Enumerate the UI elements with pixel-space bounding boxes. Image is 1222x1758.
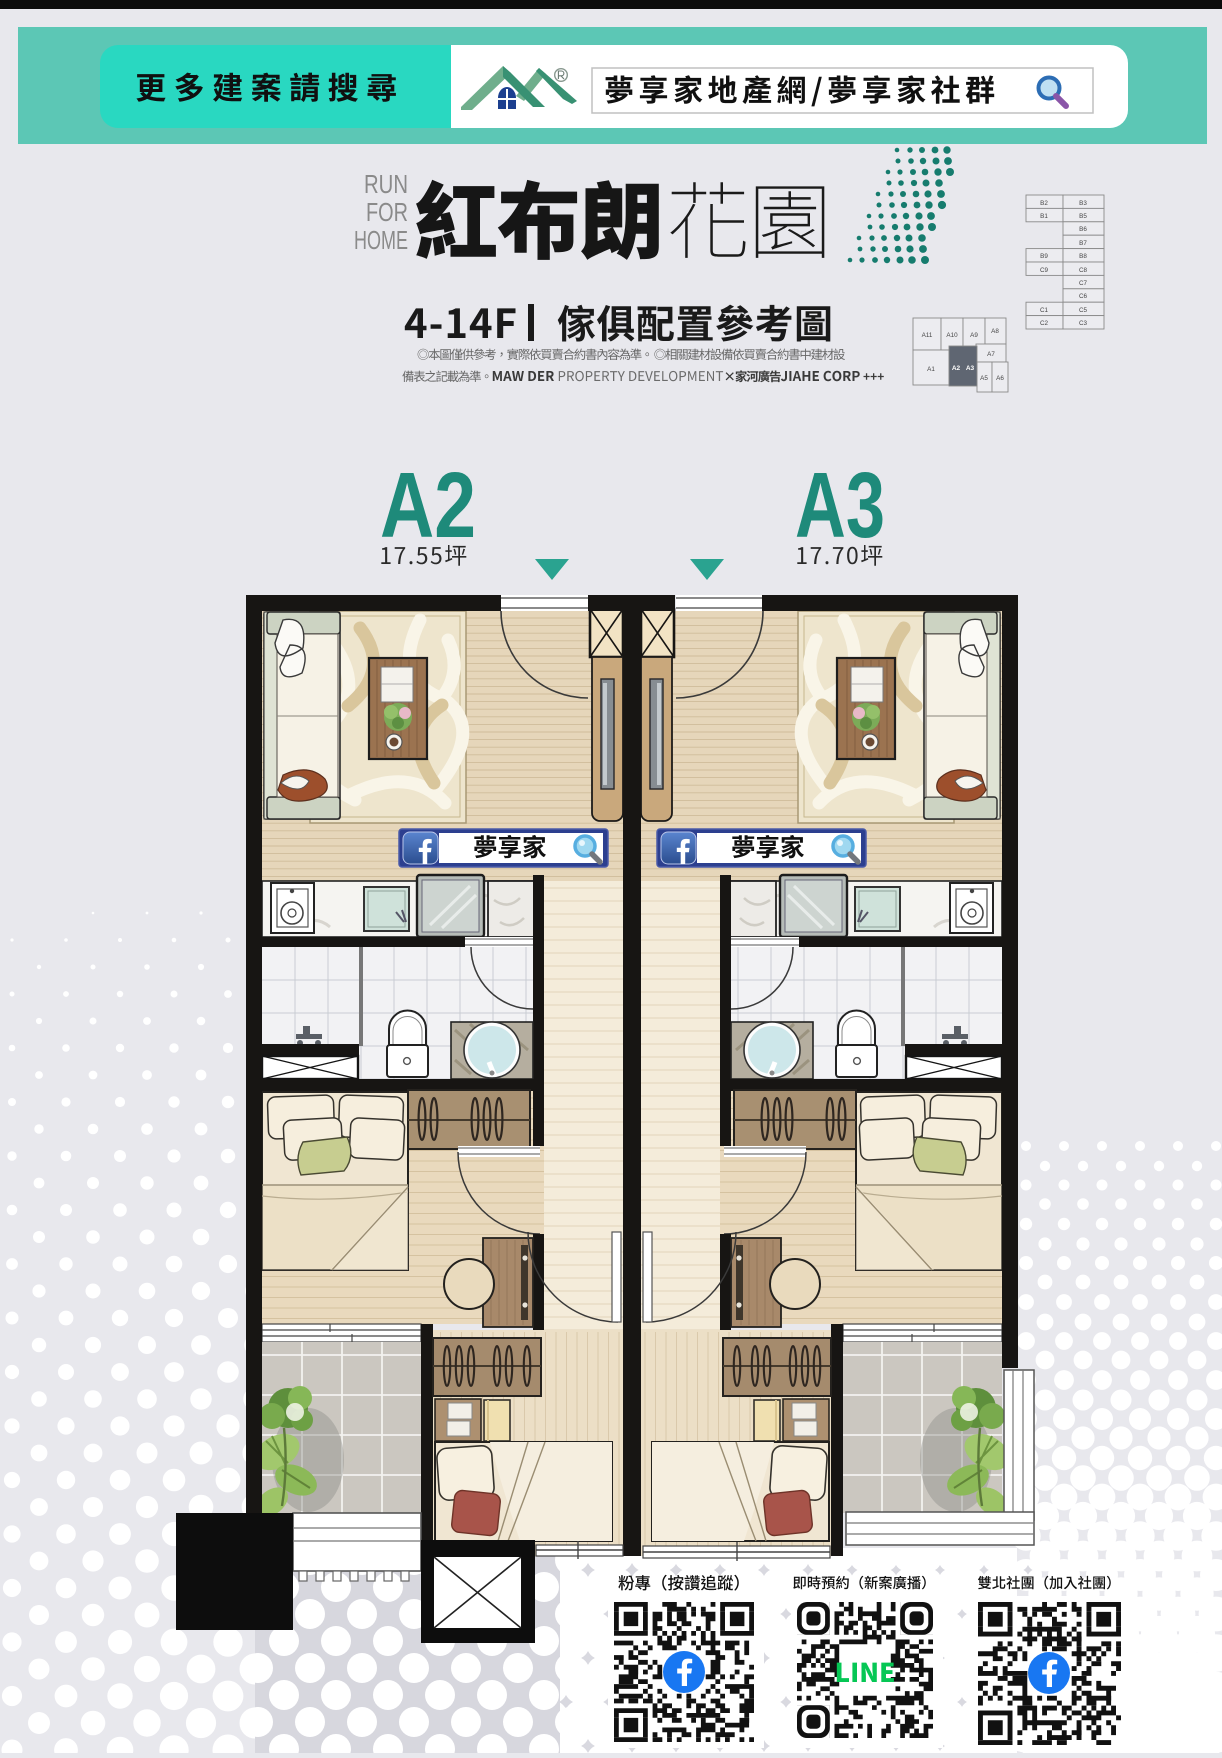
svg-text:C3: C3 [1079,320,1088,327]
svg-text:HOME: HOME [354,225,408,255]
svg-text:C5: C5 [1079,307,1088,314]
svg-text:A1: A1 [927,366,935,373]
svg-text:B6: B6 [1079,226,1087,233]
svg-text:FOR: FOR [366,197,408,227]
svg-text:C6: C6 [1079,293,1088,300]
svg-text:C1: C1 [1040,307,1049,314]
svg-text:B3: B3 [1079,200,1087,207]
svg-text:C8: C8 [1079,267,1088,274]
svg-text:A8: A8 [991,328,999,335]
svg-text:A7: A7 [987,351,995,358]
svg-text:B1: B1 [1040,213,1048,220]
svg-text:B8: B8 [1079,253,1087,260]
svg-text:A2: A2 [952,365,961,372]
svg-text:B2: B2 [1040,200,1048,207]
svg-text:A11: A11 [922,332,933,339]
svg-text:C7: C7 [1079,280,1088,287]
svg-text:RUN: RUN [364,169,408,199]
svg-text:A2: A2 [380,453,476,557]
svg-text:A9: A9 [970,332,978,339]
svg-text:C2: C2 [1040,320,1049,327]
svg-text:A3: A3 [966,365,975,372]
svg-text:A3: A3 [795,453,885,557]
svg-text:C9: C9 [1040,267,1049,274]
svg-text:B9: B9 [1040,253,1048,260]
svg-text:A5: A5 [980,375,988,382]
svg-text:A10: A10 [946,332,958,339]
svg-text:A6: A6 [996,375,1004,382]
svg-text:B5: B5 [1079,213,1087,220]
svg-text:B7: B7 [1079,240,1087,247]
